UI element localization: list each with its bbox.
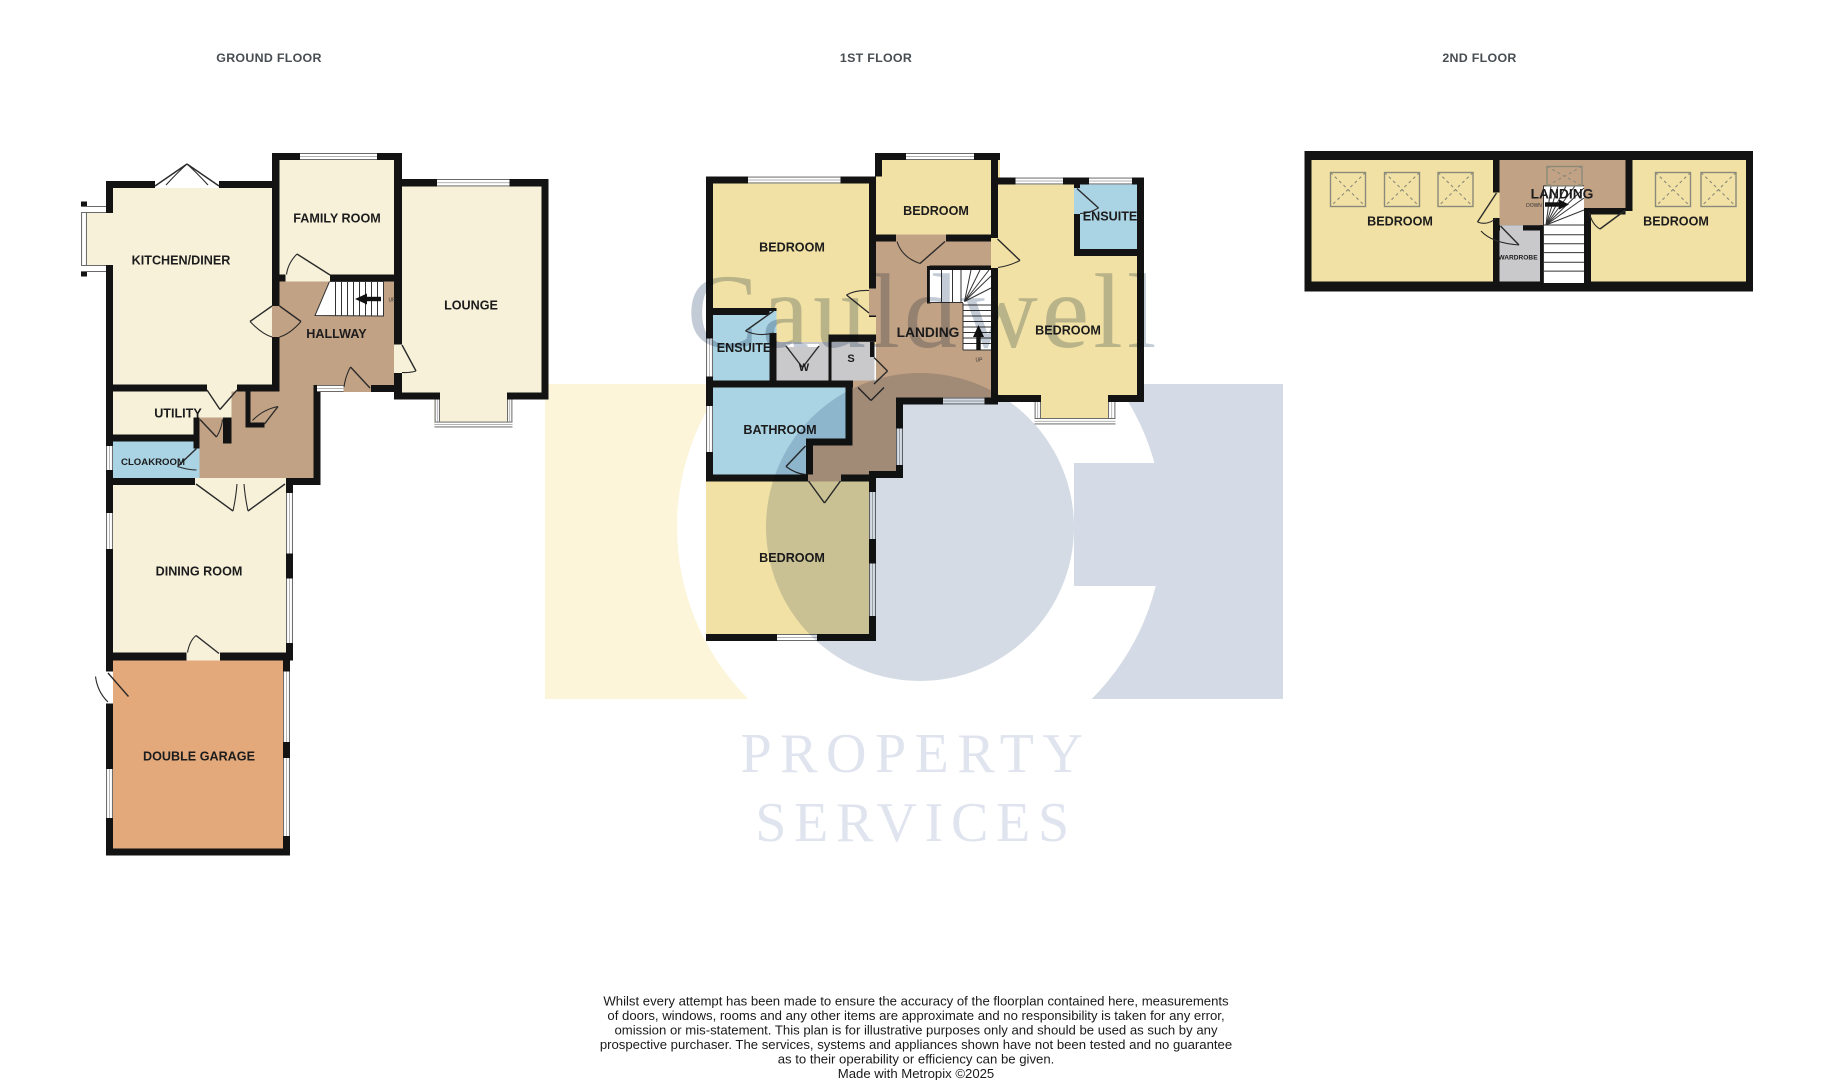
svg-text:of doors, windows, rooms and a: of doors, windows, rooms and any other i… xyxy=(607,1008,1224,1023)
svg-text:2ND FLOOR: 2ND FLOOR xyxy=(1442,51,1516,65)
svg-text:HALLWAY: HALLWAY xyxy=(306,327,367,341)
svg-text:BEDROOM: BEDROOM xyxy=(903,204,969,218)
svg-text:UP: UP xyxy=(389,298,397,304)
svg-text:DINING ROOM: DINING ROOM xyxy=(156,565,243,579)
svg-text:prospective purchaser. The ser: prospective purchaser. The services, sys… xyxy=(600,1037,1232,1052)
svg-text:GROUND FLOOR: GROUND FLOOR xyxy=(216,51,321,65)
svg-text:WARDROBE: WARDROBE xyxy=(1498,255,1538,262)
svg-text:1ST FLOOR: 1ST FLOOR xyxy=(840,51,912,65)
svg-text:DOWN: DOWN xyxy=(1526,203,1542,209)
svg-text:SERVICES: SERVICES xyxy=(755,792,1077,854)
svg-text:BEDROOM: BEDROOM xyxy=(1643,215,1709,229)
svg-text:BEDROOM: BEDROOM xyxy=(1367,215,1433,229)
svg-text:KITCHEN/DINER: KITCHEN/DINER xyxy=(132,254,231,268)
svg-text:Whilst every attempt has been: Whilst every attempt has been made to en… xyxy=(603,994,1229,1009)
svg-text:PROPERTY: PROPERTY xyxy=(741,723,1092,785)
svg-text:LOUNGE: LOUNGE xyxy=(444,299,498,313)
svg-text:CLOAKROOM: CLOAKROOM xyxy=(121,457,185,468)
svg-text:DOUBLE GARAGE: DOUBLE GARAGE xyxy=(143,750,255,764)
svg-text:LANDING: LANDING xyxy=(1531,187,1594,202)
svg-text:ENSUITE: ENSUITE xyxy=(1083,210,1138,224)
svg-text:as to their operability or eff: as to their operability or efficiency ca… xyxy=(778,1052,1055,1067)
svg-text:UTILITY: UTILITY xyxy=(154,407,202,421)
svg-text:Made with Metropix ©2025: Made with Metropix ©2025 xyxy=(838,1066,995,1080)
svg-text:FAMILY ROOM: FAMILY ROOM xyxy=(293,212,380,226)
svg-text:omission or mis-statement. Thi: omission or mis-statement. This plan is … xyxy=(614,1023,1217,1038)
svg-text:Cauldwell: Cauldwell xyxy=(687,253,1161,370)
